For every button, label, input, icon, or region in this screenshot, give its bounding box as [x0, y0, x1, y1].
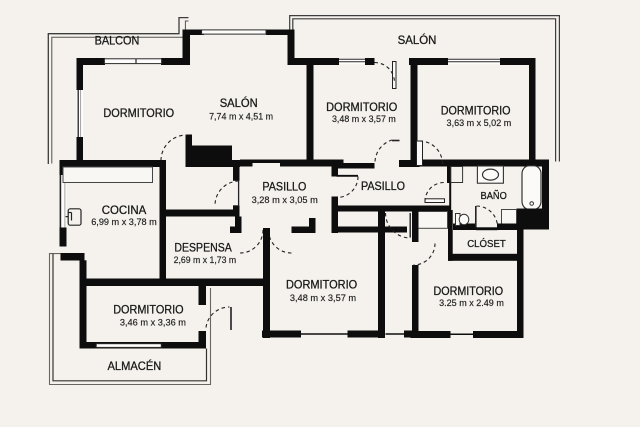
svg-text:DORMITORIO: DORMITORIO	[441, 105, 511, 117]
svg-text:2,69 m x 1,73 m: 2,69 m x 1,73 m	[174, 255, 237, 266]
svg-text:3,28 m x 3,05 m: 3,28 m x 3,05 m	[252, 195, 318, 206]
svg-text:PASILLO: PASILLO	[262, 181, 306, 193]
svg-text:SALÓN: SALÓN	[220, 97, 258, 110]
svg-text:3,63 m x 5,02 m: 3,63 m x 5,02 m	[447, 118, 512, 129]
svg-text:3.25 m x 2.49 m: 3.25 m x 2.49 m	[439, 298, 504, 309]
svg-text:SALÓN: SALÓN	[398, 34, 437, 47]
svg-text:3,48 m x 3,57 m: 3,48 m x 3,57 m	[332, 114, 396, 125]
svg-text:3,48 m x 3,57 m: 3,48 m x 3,57 m	[290, 293, 356, 304]
svg-text:DORMITORIO: DORMITORIO	[103, 108, 174, 120]
svg-text:COCINA: COCINA	[102, 205, 147, 217]
svg-text:BAÑO: BAÑO	[481, 189, 508, 202]
svg-text:CLÓSET: CLÓSET	[467, 237, 506, 250]
svg-text:DORMITORIO: DORMITORIO	[433, 286, 503, 298]
svg-text:BALCON: BALCON	[95, 36, 140, 48]
svg-text:6,99 m x 3,78 m: 6,99 m x 3,78 m	[91, 217, 157, 228]
svg-text:ALMACÉN: ALMACÉN	[108, 360, 162, 373]
svg-text:DORMITORIO: DORMITORIO	[113, 305, 183, 317]
svg-text:PASILLO: PASILLO	[361, 181, 405, 193]
svg-text:DESPENSA: DESPENSA	[174, 243, 232, 255]
svg-text:DORMITORIO: DORMITORIO	[326, 102, 397, 114]
svg-text:3,46 m x 3,36 m: 3,46 m x 3,36 m	[120, 317, 186, 328]
svg-text:DORMITORIO: DORMITORIO	[286, 279, 357, 291]
svg-text:7,74 m x 4,51 m: 7,74 m x 4,51 m	[209, 111, 273, 122]
